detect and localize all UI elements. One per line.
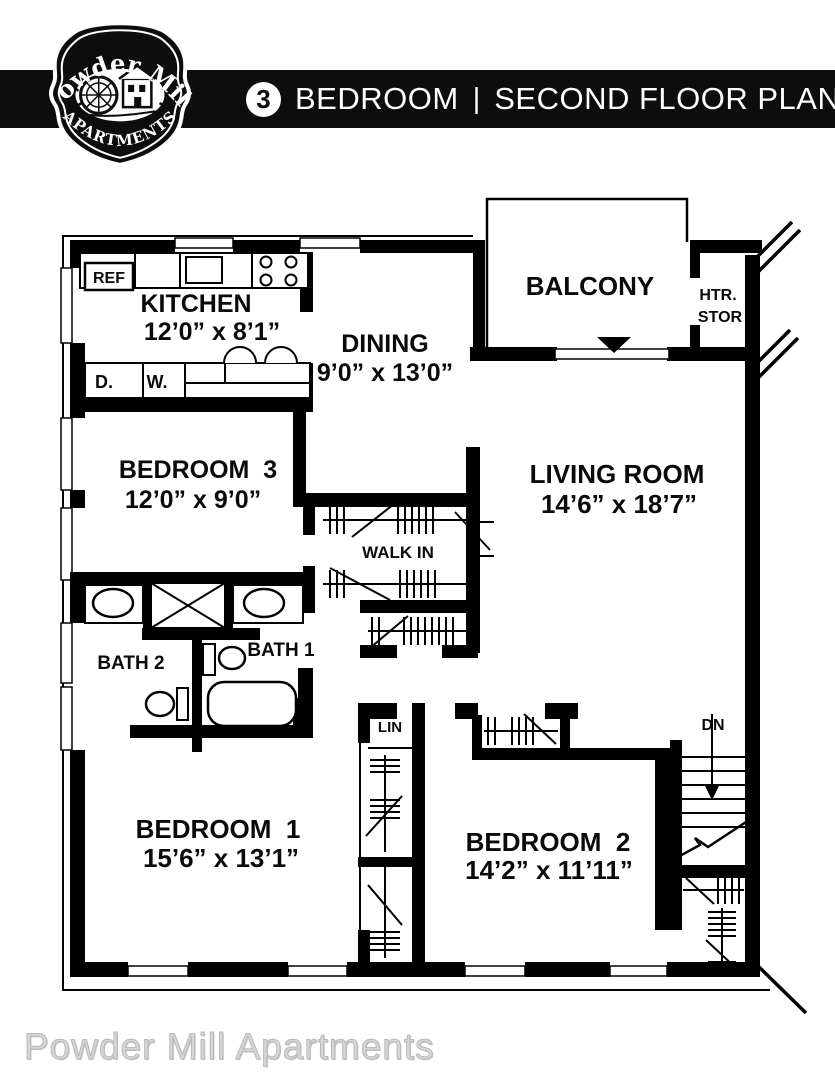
- label-dining: DINING: [341, 330, 429, 358]
- stairs: [676, 714, 746, 858]
- label-bedroom1: BEDROOM 1: [136, 814, 301, 844]
- refrigerator: REF: [85, 263, 133, 290]
- label-bedroom2-dims: 14’2” x 11’11”: [465, 855, 633, 885]
- double-sink: [224, 347, 256, 363]
- page-title: 3 BEDROOM | SECOND FLOOR PLAN: [246, 70, 835, 128]
- label-bedroom2: BEDROOM 2: [466, 827, 631, 857]
- title-separator: |: [473, 83, 481, 116]
- label-bath1: BATH 1: [247, 640, 315, 661]
- label-down: DN: [701, 717, 724, 734]
- label-stor: STOR: [698, 309, 743, 326]
- sink-bath1: [244, 589, 284, 617]
- page: REF D. W.: [0, 0, 835, 1080]
- label-bath2: BATH 2: [97, 653, 164, 674]
- title-left: BEDROOM: [295, 81, 459, 117]
- kitchen-counter-bottom: D. W.: [85, 347, 310, 398]
- title-right: SECOND FLOOR PLAN: [494, 81, 835, 117]
- label-balcony: BALCONY: [526, 271, 655, 301]
- washer-label: W.: [147, 372, 168, 392]
- shower: [151, 583, 225, 628]
- label-living-room: LIVING ROOM: [530, 459, 705, 489]
- logo-badge: Powder Mill APARTMENTS: [34, 18, 206, 170]
- kitchen-sink: [186, 257, 222, 283]
- label-htr: HTR.: [699, 287, 736, 304]
- refrigerator-label: REF: [93, 270, 125, 287]
- unit-count-badge: 3: [246, 82, 281, 117]
- label-living-room-dims: 14’6” x 18’7”: [541, 489, 697, 519]
- label-walk-in: WALK IN: [362, 543, 434, 562]
- label-kitchen: KITCHEN: [140, 290, 251, 318]
- label-dining-dims: 9’0” x 13’0”: [317, 359, 453, 387]
- label-bedroom3: BEDROOM 3: [119, 456, 277, 484]
- toilet-bath2: [146, 688, 188, 720]
- label-bedroom3-dims: 12’0” x 9’0”: [125, 486, 261, 514]
- dryer-label: D.: [95, 372, 113, 392]
- down-arrow-head: [704, 784, 720, 800]
- footer-watermark: Powder Mill Apartments: [24, 1026, 435, 1068]
- label-kitchen-dims: 12’0” x 8’1”: [144, 318, 280, 346]
- toilet-bath1: [203, 644, 245, 675]
- label-bedroom1-dims: 15’6” x 13’1”: [143, 843, 299, 873]
- bathtub: [208, 682, 296, 726]
- label-linen: LIN: [378, 719, 402, 736]
- sink-bath2: [93, 589, 133, 617]
